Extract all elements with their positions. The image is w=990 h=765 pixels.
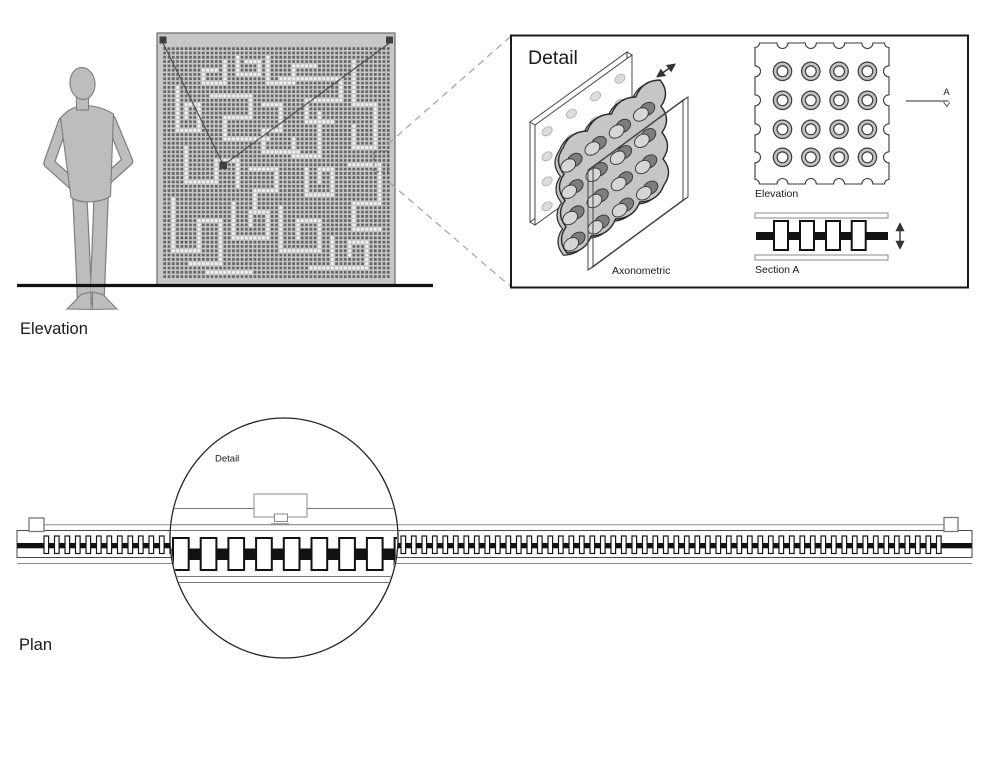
track-mullion — [737, 536, 742, 554]
section-mullion — [774, 221, 788, 250]
track-mullion — [569, 536, 574, 554]
track-mullion — [601, 536, 606, 554]
ring-inner — [777, 95, 788, 106]
track-mullion — [664, 536, 669, 554]
magnified-mullion — [284, 538, 300, 570]
perforated-panel — [157, 33, 395, 285]
track-mullion — [485, 536, 490, 554]
section-mullion — [826, 221, 840, 250]
track-mullion — [527, 536, 532, 554]
leader-line-top — [388, 37, 510, 144]
detail-box-title: Detail — [528, 47, 578, 69]
section-a-label: Section A — [755, 264, 799, 276]
ring-inner — [862, 152, 873, 163]
track-mullion — [937, 536, 942, 554]
magnified-mullion — [312, 538, 328, 570]
magnified-mullion — [173, 538, 189, 570]
track-mullion — [821, 536, 826, 554]
ring-inner — [805, 152, 816, 163]
track-mullion — [842, 536, 847, 554]
track-mullion — [454, 536, 459, 554]
plan-detail-label: Detail — [215, 454, 239, 465]
ring-inner — [805, 124, 816, 135]
track-mullion — [632, 536, 637, 554]
plan-view: Detail Plan — [17, 418, 972, 658]
ring-inner — [777, 124, 788, 135]
magnified-mullion — [339, 538, 355, 570]
track-mullion — [139, 536, 144, 554]
track-mullion — [863, 536, 868, 554]
track-mullion — [590, 536, 595, 554]
plan-view-label: Plan — [19, 636, 52, 654]
plan-detail-callout: Detail — [170, 418, 410, 658]
cable-anchor-right — [386, 37, 393, 44]
track-mullion — [769, 536, 774, 554]
axonometric-label: Axonometric — [612, 265, 670, 277]
track-mullion — [44, 536, 49, 554]
track-mullion — [695, 536, 700, 554]
head — [68, 66, 96, 100]
magnified-mullion — [256, 538, 272, 570]
magnified-mullion — [201, 538, 217, 570]
track-mullion — [517, 536, 522, 554]
track-mullion — [475, 536, 480, 554]
track-mullion — [464, 536, 469, 554]
track-mullion — [832, 536, 837, 554]
section-mullion — [852, 221, 866, 250]
track-mullion — [926, 536, 931, 554]
track-mullion — [622, 536, 627, 554]
track-mullion — [611, 536, 616, 554]
ring-inner — [834, 95, 845, 106]
architectural-drawing-sheet: Elevation Detail Axonometric Elevation — [0, 0, 990, 765]
track-mullion — [118, 536, 123, 554]
track-mullion — [548, 536, 553, 554]
track-mullion — [107, 536, 112, 554]
elevation-view: Elevation — [17, 33, 510, 338]
elevation-view-label: Elevation — [20, 320, 88, 338]
track-mullion — [160, 536, 165, 554]
cable-anchor-left — [160, 37, 167, 44]
magnified-mullion — [367, 538, 383, 570]
track-mullion — [916, 536, 921, 554]
track-mullion — [779, 536, 784, 554]
glass-strip-bottom — [755, 255, 888, 260]
track-mullion — [800, 536, 805, 554]
track-mullion — [496, 536, 501, 554]
track-mullion — [559, 536, 564, 554]
track-mullion — [674, 536, 679, 554]
track-mullion — [538, 536, 543, 554]
track-mullion — [65, 536, 70, 554]
section-marker-label: A — [943, 87, 950, 98]
drive-unit-tab — [275, 514, 288, 522]
ring-inner — [862, 95, 873, 106]
track-mullion — [128, 536, 133, 554]
detail-box: Detail Axonometric Elevation A — [511, 36, 968, 288]
ring-inner — [805, 95, 816, 106]
track-mullion — [422, 536, 427, 554]
track-mullion — [97, 536, 102, 554]
ring-inner — [777, 152, 788, 163]
gondola — [220, 162, 228, 170]
track-mullion — [884, 536, 889, 554]
module-elevation-label: Elevation — [755, 188, 798, 200]
ring-inner — [834, 152, 845, 163]
track-mullion — [86, 536, 91, 554]
track-mullion — [76, 536, 81, 554]
track-mullion — [580, 536, 585, 554]
track-mullion — [895, 536, 900, 554]
track-mullion — [443, 536, 448, 554]
magnified-mullion — [228, 538, 244, 570]
track-mullion — [433, 536, 438, 554]
track-mullion — [506, 536, 511, 554]
track-mullion — [811, 536, 816, 554]
track-mullion — [905, 536, 910, 554]
ring-inner — [834, 66, 845, 77]
track-mullion — [748, 536, 753, 554]
track-mullion — [853, 536, 858, 554]
plan-end-cap-right — [944, 518, 958, 532]
ring-inner — [777, 66, 788, 77]
ring-inner — [834, 124, 845, 135]
ring-inner — [805, 66, 816, 77]
section-mullion — [800, 221, 814, 250]
track-mullion — [149, 536, 154, 554]
plan-end-cap-left — [29, 518, 44, 532]
track-mullion — [790, 536, 795, 554]
human-silhouette — [49, 66, 128, 309]
track-mullion — [412, 536, 417, 554]
track-mullion — [643, 536, 648, 554]
track-mullion — [706, 536, 711, 554]
track-mullion — [874, 536, 879, 554]
track-mullion — [401, 536, 406, 554]
track-mullion — [727, 536, 732, 554]
ring-inner — [862, 66, 873, 77]
track-mullion — [653, 536, 658, 554]
track-mullion — [716, 536, 721, 554]
ring-inner — [862, 124, 873, 135]
panel-module-elevation: Elevation — [755, 43, 889, 200]
track-mullion — [758, 536, 763, 554]
magnified-track-mullions — [173, 538, 410, 570]
track-mullion — [55, 536, 60, 554]
leader-line-bottom — [390, 183, 510, 286]
glass-strip-top — [755, 213, 888, 218]
track-mullion — [685, 536, 690, 554]
